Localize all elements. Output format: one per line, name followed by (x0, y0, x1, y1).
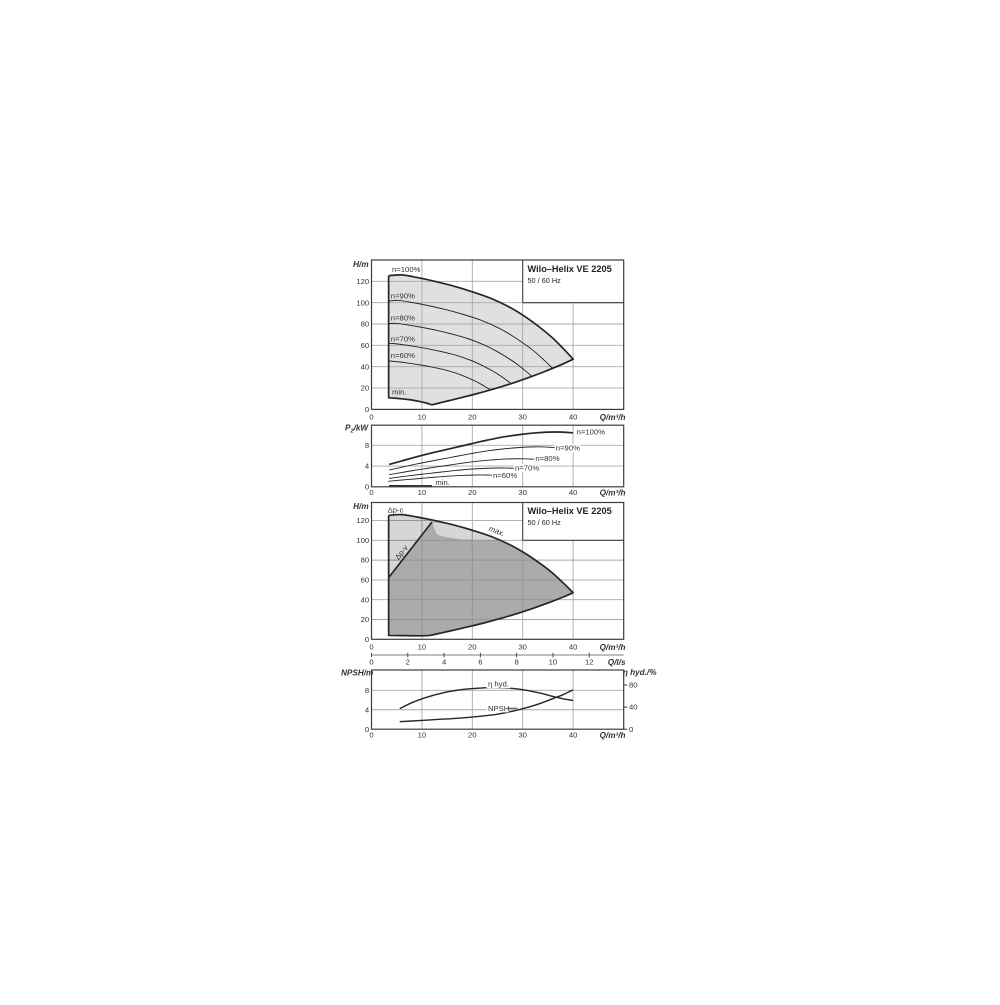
svg-text:40: 40 (569, 413, 578, 422)
svg-text:n=80%: n=80% (391, 314, 415, 323)
svg-text:Q/m³/h: Q/m³/h (600, 488, 626, 497)
svg-text:min.: min. (392, 388, 407, 397)
svg-text:10: 10 (418, 731, 427, 740)
svg-text:40: 40 (629, 703, 638, 712)
svg-text:10: 10 (418, 488, 427, 497)
svg-text:H/m: H/m (353, 260, 368, 269)
svg-text:0: 0 (369, 658, 373, 667)
svg-text:120: 120 (356, 516, 369, 525)
svg-text:20: 20 (468, 731, 477, 740)
svg-text:n=60%: n=60% (391, 351, 415, 360)
svg-text:30: 30 (518, 488, 527, 497)
svg-text:Δp-c: Δp-c (388, 506, 404, 515)
svg-text:10: 10 (549, 658, 558, 667)
svg-text:n=100%: n=100% (577, 428, 606, 437)
svg-text:Q/m³/h: Q/m³/h (600, 413, 626, 422)
svg-text:50 / 60 Hz: 50 / 60 Hz (528, 276, 562, 285)
svg-text:12: 12 (585, 658, 594, 667)
svg-text:20: 20 (361, 615, 370, 624)
svg-text:n=60%: n=60% (493, 471, 517, 480)
svg-text:20: 20 (468, 413, 477, 422)
svg-text:40: 40 (569, 488, 578, 497)
svg-text:50 / 60 Hz: 50 / 60 Hz (528, 518, 562, 527)
svg-text:Q/l/s: Q/l/s (608, 658, 626, 667)
svg-text:40: 40 (361, 595, 370, 604)
svg-text:100: 100 (356, 298, 369, 307)
svg-text:0: 0 (369, 643, 373, 652)
svg-text:60: 60 (361, 576, 370, 585)
svg-text:Q/m³/h: Q/m³/h (600, 731, 626, 740)
svg-text:η hyd.: η hyd. (488, 680, 509, 689)
svg-text:40: 40 (361, 362, 370, 371)
svg-text:n=80%: n=80% (535, 454, 559, 463)
svg-text:4: 4 (365, 705, 370, 714)
svg-text:NPSH: NPSH (488, 704, 509, 713)
svg-text:8: 8 (365, 686, 369, 695)
svg-text:100: 100 (356, 536, 369, 545)
svg-text:120: 120 (356, 277, 369, 286)
svg-text:4: 4 (365, 462, 370, 471)
svg-text:η hyd./%: η hyd./% (623, 668, 657, 677)
svg-text:n=90%: n=90% (391, 291, 415, 300)
svg-text:60: 60 (361, 341, 370, 350)
svg-text:8: 8 (365, 441, 369, 450)
svg-text:min.: min. (435, 478, 450, 487)
svg-text:30: 30 (518, 731, 527, 740)
svg-text:NPSH/m: NPSH/m (341, 668, 373, 677)
svg-text:20: 20 (361, 384, 370, 393)
svg-text:80: 80 (361, 556, 370, 565)
svg-text:10: 10 (418, 643, 427, 652)
svg-text:n=100%: n=100% (392, 265, 421, 274)
svg-text:0: 0 (369, 731, 373, 740)
svg-text:n=90%: n=90% (556, 443, 580, 452)
svg-text:n=70%: n=70% (515, 463, 539, 472)
svg-text:40: 40 (569, 643, 578, 652)
svg-text:2: 2 (406, 658, 410, 667)
svg-text:8: 8 (515, 658, 519, 667)
svg-text:Wilo–Helix VE 2205: Wilo–Helix VE 2205 (528, 264, 612, 274)
svg-text:Q/m³/h: Q/m³/h (600, 643, 626, 652)
svg-text:30: 30 (518, 413, 527, 422)
svg-text:6: 6 (478, 658, 482, 667)
svg-text:20: 20 (468, 643, 477, 652)
svg-text:80: 80 (629, 681, 638, 690)
svg-text:0: 0 (629, 725, 633, 734)
svg-text:80: 80 (361, 320, 370, 329)
svg-text:H/m: H/m (353, 502, 368, 511)
svg-text:Wilo–Helix VE 2205: Wilo–Helix VE 2205 (528, 506, 612, 516)
svg-text:4: 4 (442, 658, 447, 667)
svg-text:10: 10 (418, 413, 427, 422)
svg-text:0: 0 (369, 488, 373, 497)
svg-text:20: 20 (468, 488, 477, 497)
svg-text:30: 30 (518, 643, 527, 652)
svg-text:n=70%: n=70% (391, 334, 415, 343)
svg-text:0: 0 (369, 413, 373, 422)
svg-text:40: 40 (569, 731, 578, 740)
